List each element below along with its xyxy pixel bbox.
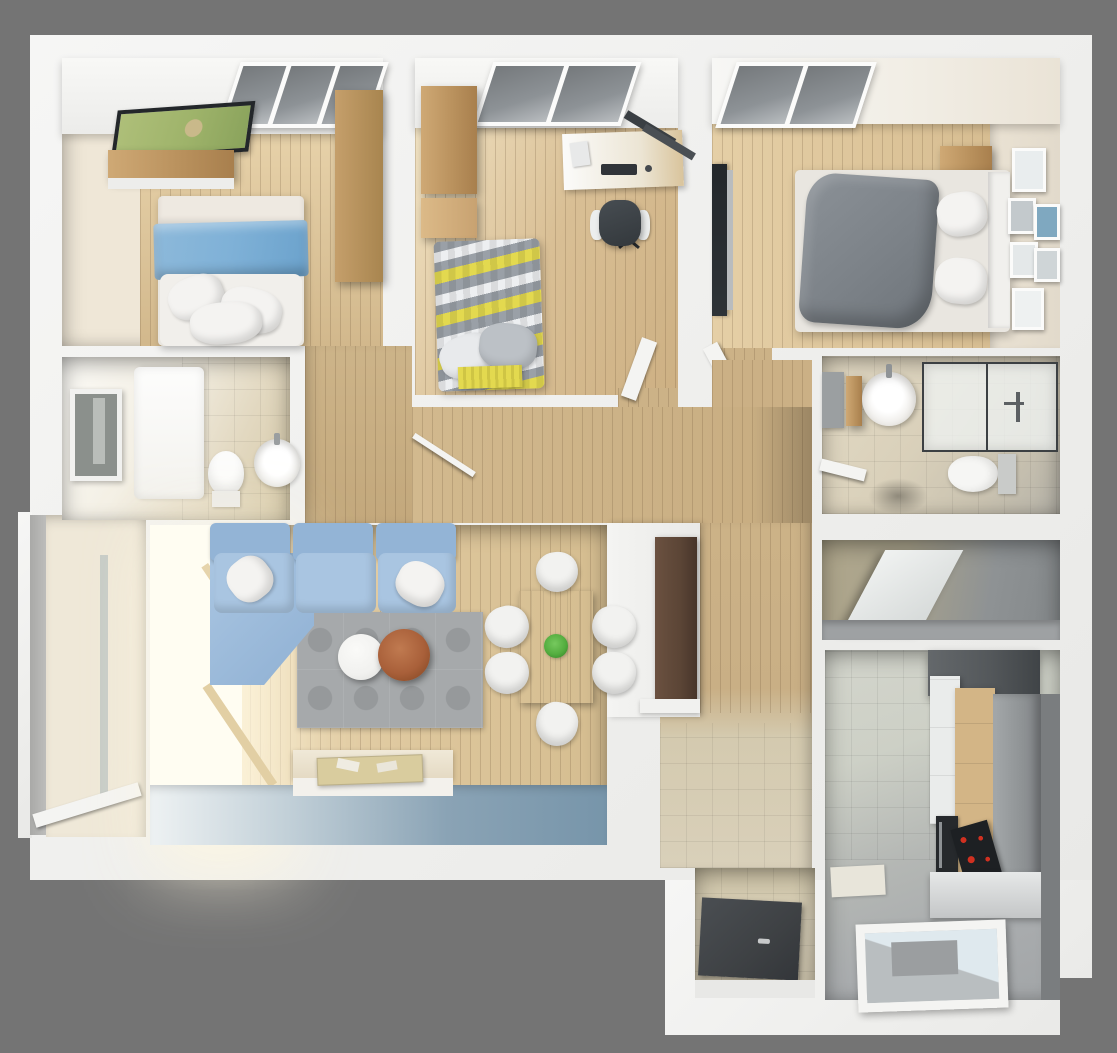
skylight-pane xyxy=(789,66,871,124)
floor-mat xyxy=(830,865,885,898)
tile-texture xyxy=(660,723,812,868)
plant-centerpiece-icon xyxy=(544,634,568,658)
storage-floor-band xyxy=(822,620,1060,640)
media-shelf xyxy=(108,150,234,180)
plank-texture xyxy=(712,360,812,407)
picture-frame xyxy=(1034,204,1060,240)
bed-double xyxy=(795,170,1010,332)
balcony-railing-glass xyxy=(30,515,46,835)
sink-icon xyxy=(862,372,916,426)
bedroom-left xyxy=(62,58,383,346)
hall-shadow xyxy=(752,407,812,523)
nightstand xyxy=(940,146,992,172)
roof-window-icon xyxy=(715,62,876,128)
vanity-ledge xyxy=(846,376,862,426)
shower-glass-divider xyxy=(986,364,988,450)
shower-floor-strip xyxy=(695,980,815,998)
hallway-main xyxy=(412,407,812,523)
window-icon xyxy=(70,389,122,481)
picture-frame xyxy=(1012,288,1044,330)
dresser xyxy=(421,198,477,238)
counter-front xyxy=(930,872,1045,918)
tv-screen-icon xyxy=(712,164,727,316)
decor-tray xyxy=(317,754,424,786)
toilet-tank xyxy=(998,454,1016,494)
balcony-glass-reflection xyxy=(100,555,108,800)
bed-double xyxy=(158,196,304,346)
floor-shadow xyxy=(868,478,928,514)
media-shelf-front xyxy=(108,178,234,189)
skylight-pane xyxy=(721,66,803,124)
vanity-cabinet xyxy=(822,372,844,428)
bathroom-left xyxy=(62,357,290,520)
window-sash xyxy=(93,398,105,464)
storage-room xyxy=(822,540,1060,640)
bed-single-chevron xyxy=(433,238,544,392)
office-chair xyxy=(590,198,650,262)
laptop-icon xyxy=(569,141,590,167)
wardrobe xyxy=(335,90,383,282)
mouse-icon xyxy=(645,165,652,172)
drain-icon xyxy=(758,938,770,944)
faucet-icon xyxy=(274,433,280,445)
pillow xyxy=(933,256,989,306)
bathroom-right xyxy=(822,356,1060,514)
tv-mount-panel xyxy=(727,170,733,310)
picture-frame xyxy=(1008,198,1036,234)
shower-fixture-icon xyxy=(1016,392,1020,422)
faucet-icon xyxy=(886,364,892,378)
sofa-seat-cushion xyxy=(296,553,376,613)
shower-niche xyxy=(695,868,815,998)
chair-seat xyxy=(599,200,641,246)
blanket-blue xyxy=(153,220,308,280)
blanket-yellow-fold xyxy=(458,365,523,389)
toilet-icon xyxy=(948,456,998,492)
wardrobe xyxy=(421,86,477,194)
wall-shelf xyxy=(819,459,867,482)
pillow xyxy=(934,189,990,240)
oven-handle xyxy=(939,822,942,868)
shower-glass-enclosure xyxy=(922,362,1058,452)
roof-window-floor xyxy=(856,919,1009,1012)
plank-texture xyxy=(305,346,412,523)
toilet-icon xyxy=(208,451,244,495)
tv-sideboard xyxy=(293,750,453,798)
keyboard-icon xyxy=(601,164,637,175)
headboard xyxy=(988,172,1010,328)
roof-window-icon xyxy=(473,62,642,126)
floor-plan-scene xyxy=(0,0,1117,1053)
shower-fixture-icon xyxy=(1004,402,1024,405)
sofa-sectional xyxy=(210,523,458,665)
sink-icon xyxy=(254,439,300,487)
roof-window-inner-pane xyxy=(891,940,958,976)
shower-tray-dark xyxy=(698,897,802,980)
hallway-northeast xyxy=(712,360,812,407)
blanket-gray xyxy=(798,172,940,331)
picture-frame xyxy=(1034,248,1060,282)
toilet-tank xyxy=(212,491,240,507)
kitchen xyxy=(825,650,1060,1000)
cabinet-side-band xyxy=(1041,694,1060,1000)
wall-end-cap xyxy=(640,699,700,713)
skylight-pane xyxy=(550,66,636,122)
shower-tub xyxy=(134,367,204,499)
picture-frame xyxy=(1012,148,1046,192)
leaning-panel xyxy=(843,550,964,630)
skylight-pane xyxy=(478,66,564,122)
slab-corner-notch xyxy=(1060,978,1092,1035)
hallway-west xyxy=(305,346,412,523)
entrance-door xyxy=(655,537,697,701)
